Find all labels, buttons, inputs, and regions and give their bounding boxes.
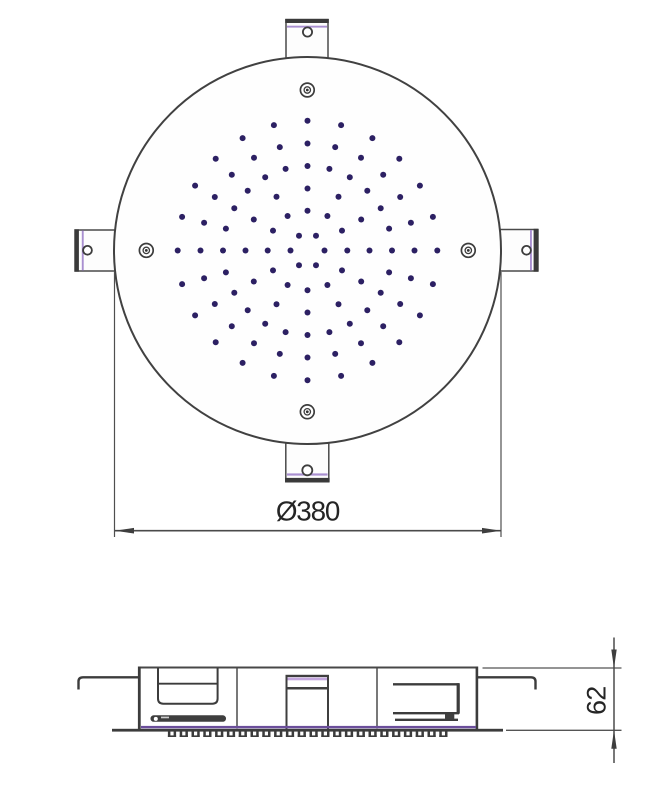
svg-text:Ø380: Ø380 [276,495,340,526]
svg-text:62: 62 [582,687,612,715]
